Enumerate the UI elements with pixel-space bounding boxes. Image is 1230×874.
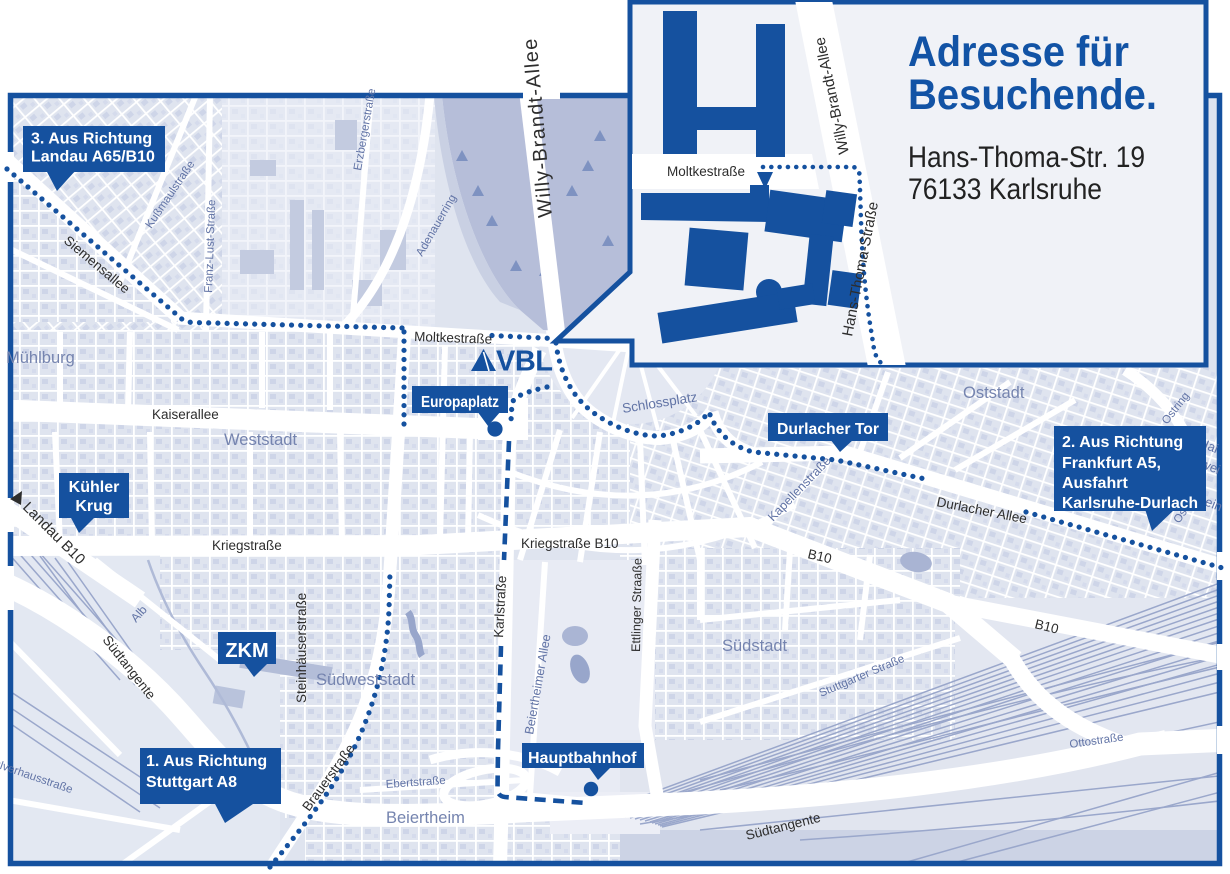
svg-text:Moltkestraße: Moltkestraße [414,329,493,347]
svg-text:Stuttgart A8: Stuttgart A8 [146,774,237,791]
svg-text:Ausfahrt: Ausfahrt [1062,475,1128,492]
svg-text:Oststadt: Oststadt [963,384,1025,402]
svg-text:Krug: Krug [75,498,112,515]
svg-text:Mühlburg: Mühlburg [6,349,75,367]
svg-text:76133 Karlsruhe: 76133 Karlsruhe [908,173,1102,206]
svg-text:Besuchende.: Besuchende. [908,71,1157,119]
svg-text:Südstadt: Südstadt [722,637,788,655]
svg-text:Ettlinger Straaße: Ettlinger Straaße [629,558,645,652]
svg-text:Kühler: Kühler [69,479,120,496]
svg-text:Durlacher Tor: Durlacher Tor [777,421,879,438]
svg-text:Weststadt: Weststadt [224,431,297,449]
svg-text:Hauptbahnhof: Hauptbahnhof [528,750,637,767]
svg-text:Steinhäuserstraße: Steinhäuserstraße [294,593,309,703]
svg-text:Hans-Thoma-Str. 19: Hans-Thoma-Str. 19 [908,141,1145,174]
svg-text:1. Aus Richtung: 1. Aus Richtung [146,753,267,770]
svg-text:2. Aus Richtung: 2. Aus Richtung [1062,434,1183,451]
svg-text:Kriegstraße: Kriegstraße [212,538,282,553]
svg-text:Moltkestraße: Moltkestraße [667,164,745,179]
svg-text:Kaiserallee: Kaiserallee [152,407,219,422]
svg-text:VBL: VBL [496,346,553,378]
svg-text:ZKM: ZKM [225,640,268,662]
svg-text:Südweststadt: Südweststadt [316,671,415,689]
svg-text:Kriegstraße B10: Kriegstraße B10 [521,536,619,551]
svg-text:Karlsruhe-Durlach: Karlsruhe-Durlach [1062,495,1198,512]
svg-text:Adresse für: Adresse für [908,28,1129,76]
svg-text:Frankfurt A5,: Frankfurt A5, [1062,455,1161,472]
svg-text:Europaplatz: Europaplatz [421,394,499,411]
svg-text:Beiertheim: Beiertheim [386,809,465,827]
svg-text:Landau A65/B10: Landau A65/B10 [31,149,155,166]
svg-text:3. Aus Richtung: 3. Aus Richtung [31,131,152,148]
